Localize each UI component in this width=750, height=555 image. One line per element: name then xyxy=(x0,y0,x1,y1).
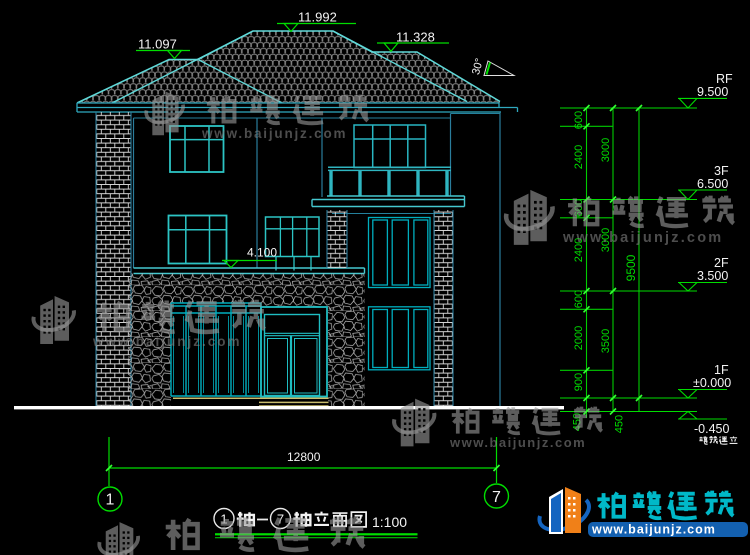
svg-text:12800: 12800 xyxy=(287,450,321,464)
svg-text:6.500: 6.500 xyxy=(697,177,728,191)
svg-text:www.baijunjz.com: www.baijunjz.com xyxy=(562,230,723,246)
svg-text:9.500: 9.500 xyxy=(697,85,728,99)
svg-text:600: 600 xyxy=(573,111,585,129)
svg-text:1: 1 xyxy=(106,492,115,509)
svg-text:3000: 3000 xyxy=(600,138,612,162)
svg-text:3F: 3F xyxy=(714,164,729,178)
svg-text:2400: 2400 xyxy=(573,145,585,169)
svg-text:450: 450 xyxy=(614,415,626,433)
svg-text:11.328: 11.328 xyxy=(396,30,435,45)
svg-text:11.097: 11.097 xyxy=(138,37,177,52)
svg-text:2000: 2000 xyxy=(573,326,585,350)
svg-text:1:100: 1:100 xyxy=(372,514,407,530)
svg-text:www.baijunjz.com: www.baijunjz.com xyxy=(92,334,242,349)
svg-text:±0.000: ±0.000 xyxy=(693,376,731,390)
svg-text:600: 600 xyxy=(573,290,585,308)
svg-text:3500: 3500 xyxy=(600,329,612,353)
svg-text:900: 900 xyxy=(573,373,585,391)
svg-text:2F: 2F xyxy=(714,256,729,270)
svg-text:www.baijunjz.com: www.baijunjz.com xyxy=(449,435,586,450)
svg-text:3.500: 3.500 xyxy=(697,269,728,283)
svg-text:-0.450: -0.450 xyxy=(694,422,729,436)
svg-text:9500: 9500 xyxy=(624,254,638,281)
svg-text:4.100: 4.100 xyxy=(247,246,277,260)
svg-text:1F: 1F xyxy=(714,363,729,377)
svg-text:RF: RF xyxy=(716,72,733,86)
svg-text:11.992: 11.992 xyxy=(298,10,337,25)
svg-text:www.baijunjz.com: www.baijunjz.com xyxy=(591,523,716,537)
svg-text:7: 7 xyxy=(492,489,501,506)
svg-text:www.baijunjz.com: www.baijunjz.com xyxy=(201,126,347,141)
